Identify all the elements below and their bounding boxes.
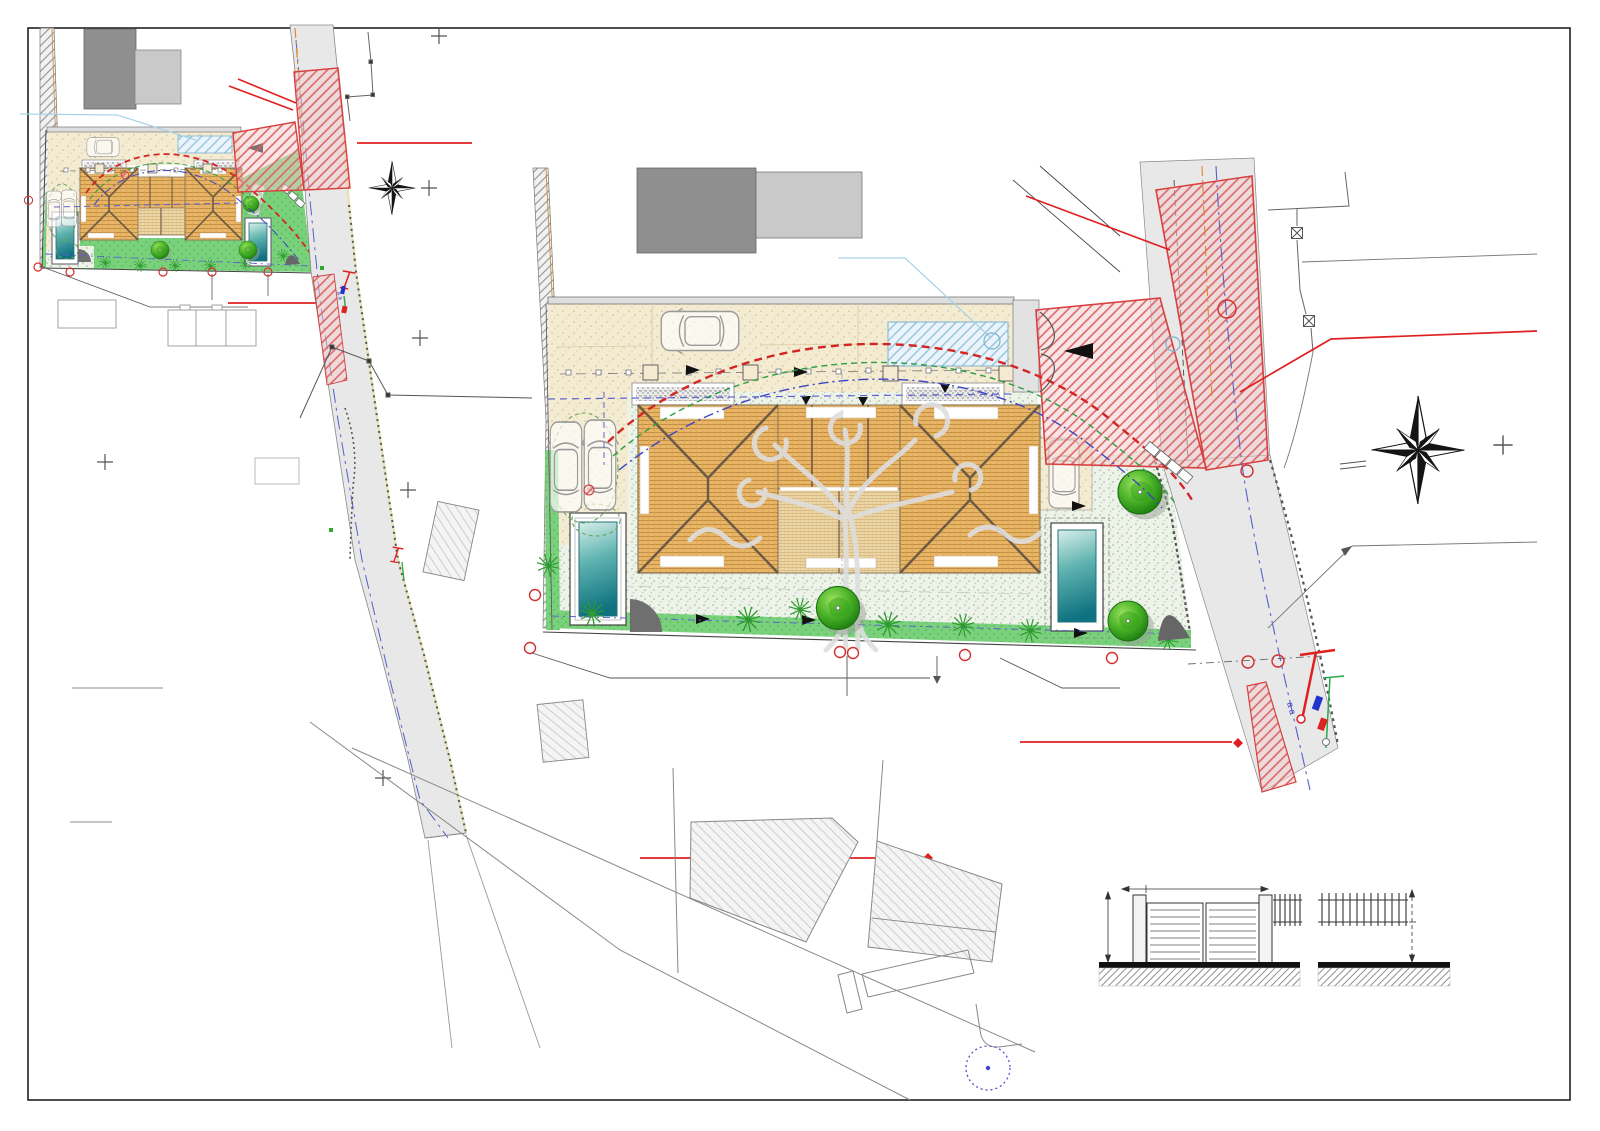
- roadworks-hatch: [233, 122, 304, 192]
- gate-leaf: [1147, 903, 1203, 963]
- neighbor-building-dark: [84, 29, 136, 109]
- outbuilding: [537, 700, 589, 762]
- pool-right: [1045, 518, 1109, 638]
- gate-post: [1259, 895, 1272, 964]
- car: [582, 420, 619, 510]
- permeable-pad: [178, 136, 232, 153]
- car: [45, 191, 63, 227]
- car: [87, 136, 119, 158]
- villa-roofs: [80, 168, 242, 240]
- gate-post: [1133, 895, 1146, 964]
- drawing-sheet: a a: [0, 0, 1600, 1131]
- neighbor-building-light: [135, 50, 181, 104]
- car: [661, 308, 739, 354]
- car: [548, 422, 585, 512]
- gate-leaf: [1206, 903, 1259, 963]
- car: [60, 190, 78, 226]
- site-plan-canvas: a a: [0, 0, 1600, 1131]
